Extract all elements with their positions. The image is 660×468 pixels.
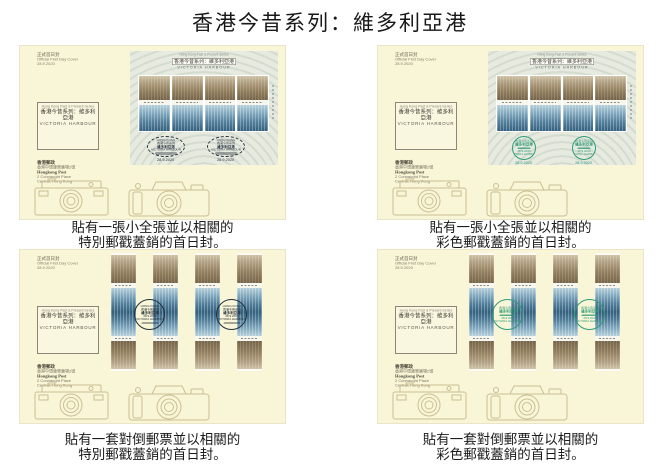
official-fdc-corner-text: 正式首日封 Official First Day Cover 28.9.2020 — [37, 256, 107, 276]
stamp-panorama-block — [496, 75, 627, 132]
stamp — [172, 76, 203, 131]
caption-bottom-right: 貼有一套對倒郵票並以相關的 彩色郵戳蓋銷的首日封。 — [378, 432, 643, 462]
colour-postmark: 香港今昔系列 維多利亞港 28.9.2020 VICTORIA HARBOUR — [492, 299, 523, 330]
fdc-cover-top-right: 正式首日封 Official First Day Cover 28.9.2020… — [378, 46, 643, 219]
sheet-copyright-microtext — [630, 85, 632, 121]
fdc-cover-top-left: 正式首日封 Official First Day Cover 28.9.2020… — [20, 46, 285, 219]
postmark-waves-icon — [215, 152, 237, 155]
souvenir-sheet: Hong Kong Past & Present Series 香港今昔系列：維… — [488, 51, 636, 165]
colour-postmark-group: 香港今昔系列 維多利亞港 28.9.2020 VICTORIA HARBOUR … — [504, 136, 544, 168]
stamp — [205, 76, 236, 131]
stamp — [139, 76, 170, 131]
caption-bottom-left: 貼有一套對倒郵票並以相關的 特別郵戳蓋銷的首日封。 — [20, 432, 285, 462]
camera-line-art-icon — [392, 178, 572, 218]
stamp — [563, 76, 594, 131]
official-fdc-corner-text: 正式首日封 Official First Day Cover 28.9.2020 — [37, 52, 107, 72]
stamp — [497, 76, 528, 131]
page: 香港今昔系列：維多利亞港 正式首日封 Official First Day Co… — [0, 0, 660, 468]
fdc-cover-bottom-right: 正式首日封 Official First Day Cover 28.9.2020… — [378, 250, 643, 423]
page-title: 香港今昔系列：維多利亞港 — [0, 7, 660, 37]
postmark-waves-icon — [141, 321, 158, 324]
fdc-cover-bottom-left: 正式首日封 Official First Day Cover 28.9.2020… — [20, 250, 285, 423]
caption-line: 貼有一套對倒郵票並以相關的 — [20, 432, 285, 447]
caption-top-left: 貼有一張小全張並以相關的 特別郵戳蓋銷的首日封。 — [20, 220, 285, 250]
special-postmark: HONG KONG 香港今昔系列 維多利亞港 28.9.2020 VICTORI… — [134, 299, 165, 330]
caption-top-right: 貼有一張小全張並以相關的 彩色郵戳蓋銷的首日封。 — [378, 220, 643, 250]
postmark-waves-icon — [577, 147, 590, 150]
series-label-box: Hong Kong Past & Present Series 香港今昔系列：維… — [395, 102, 457, 150]
special-postmark: HONG KONG 香港今昔系列 維多利亞港 28.9.2020 VICTORI… — [216, 299, 247, 330]
colour-postmark: 香港今昔系列 維多利亞港 28.9.2020 VICTORIA HARBOUR — [572, 136, 596, 160]
stamp-panorama-block — [138, 75, 269, 132]
tete-beche-stamp-strip — [111, 253, 136, 371]
postmark-date: 28.9.2020 — [217, 158, 234, 162]
postmark-waves-icon — [223, 321, 240, 324]
stamp — [595, 76, 626, 131]
special-postmark: HONG KONG 香港今昔系列 維多利亞港 VICTORIA HARBOUR — [147, 136, 185, 157]
camera-line-art-icon — [392, 382, 572, 422]
special-postmark-group: HONG KONG 香港今昔系列 維多利亞港 VICTORIA HARBOUR … — [146, 136, 186, 165]
postmark-date: 28.9.2020 — [515, 161, 532, 165]
caption-line: 特別郵戳蓋銷的首日封。 — [20, 447, 285, 462]
colour-postmark-group: 香港今昔系列 維多利亞港 28.9.2020 VICTORIA HARBOUR … — [564, 136, 604, 168]
postmark-date: 28.9.2020 — [157, 158, 174, 162]
postmark-waves-icon — [155, 152, 177, 155]
special-postmark: HONG KONG 香港今昔系列 維多利亞港 VICTORIA HARBOUR — [207, 136, 245, 157]
caption-line: 特別郵戳蓋銷的首日封。 — [20, 235, 285, 250]
corner-date: 28.9.2020 — [37, 62, 107, 67]
camera-line-art-icon — [34, 382, 214, 422]
caption-line: 貼有一張小全張並以相關的 — [20, 220, 285, 235]
colour-postmark: 香港今昔系列 維多利亞港 28.9.2020 VICTORIA HARBOUR — [574, 299, 605, 330]
colour-postmark: 香港今昔系列 維多利亞港 28.9.2020 VICTORIA HARBOUR — [512, 136, 536, 160]
caption-line: 彩色郵戳蓋銷的首日封。 — [378, 235, 643, 250]
sheet-copyright-microtext — [272, 85, 274, 121]
caption-line: 貼有一張小全張並以相關的 — [378, 220, 643, 235]
postmark-waves-icon — [517, 147, 530, 150]
postmark-waves-icon — [499, 313, 516, 316]
caption-line: 彩色郵戳蓋銷的首日封。 — [378, 447, 643, 462]
official-fdc-corner-text: 正式首日封 Official First Day Cover 28.9.2020 — [395, 52, 465, 72]
official-fdc-corner-text: 正式首日封 Official First Day Cover 28.9.2020 — [395, 256, 465, 276]
stamp — [530, 76, 561, 131]
special-postmark-group: HONG KONG 香港今昔系列 維多利亞港 VICTORIA HARBOUR … — [206, 136, 246, 165]
postmark-waves-icon — [581, 313, 598, 316]
series-label-box: Hong Kong Past & Present Series 香港今昔系列：維… — [395, 306, 457, 354]
postmark-date: 28.9.2020 — [575, 161, 592, 165]
stamp — [237, 76, 268, 131]
tete-beche-stamp-strip — [469, 253, 494, 371]
camera-line-art-icon — [34, 178, 214, 218]
series-label-box: Hong Kong Past & Present Series 香港今昔系列：維… — [37, 102, 99, 150]
caption-line: 貼有一套對倒郵票並以相關的 — [378, 432, 643, 447]
souvenir-sheet: Hong Kong Past & Present Series 香港今昔系列：維… — [130, 51, 278, 165]
series-label-box: Hong Kong Past & Present Series 香港今昔系列：維… — [37, 306, 99, 354]
